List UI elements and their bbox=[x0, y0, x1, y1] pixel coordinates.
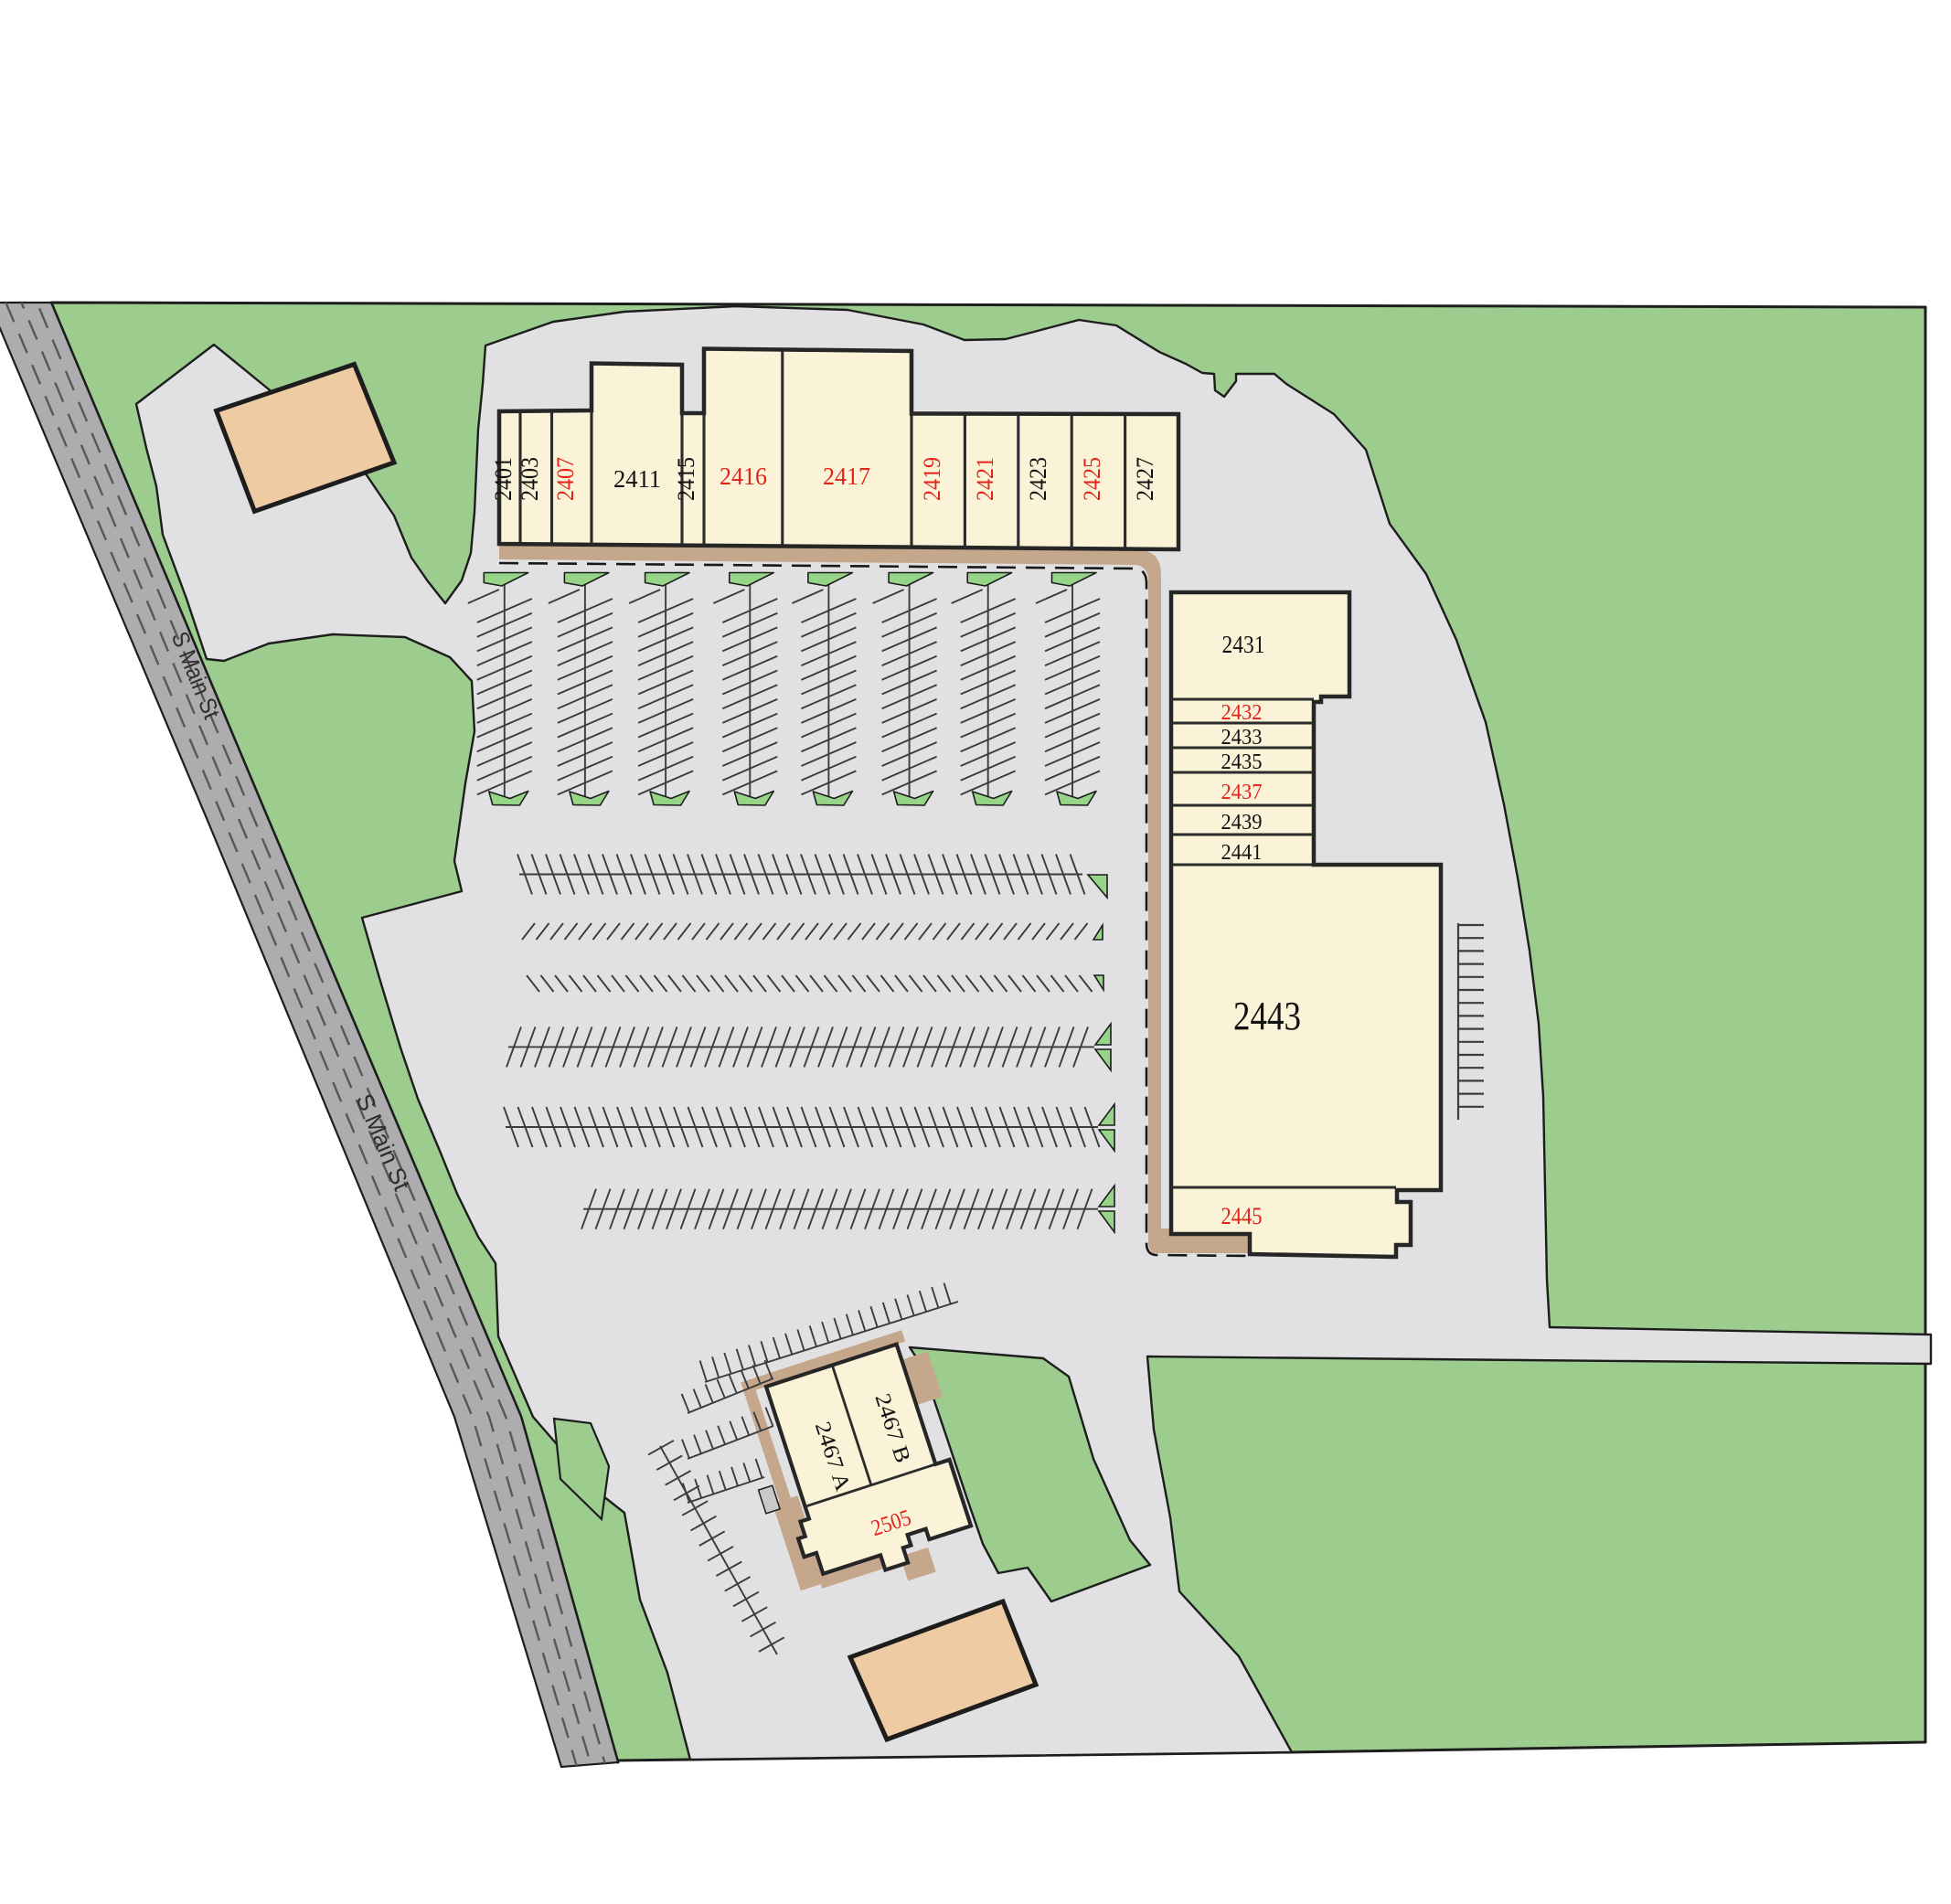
svg-text:2421: 2421 bbox=[972, 457, 998, 501]
svg-text:2439: 2439 bbox=[1221, 811, 1263, 835]
svg-text:2433: 2433 bbox=[1221, 726, 1263, 750]
svg-text:2437: 2437 bbox=[1221, 781, 1263, 804]
svg-text:2425: 2425 bbox=[1079, 457, 1105, 501]
svg-text:2431: 2431 bbox=[1222, 631, 1265, 658]
svg-text:2445: 2445 bbox=[1221, 1203, 1263, 1229]
svg-text:2407: 2407 bbox=[552, 457, 579, 501]
svg-text:2411: 2411 bbox=[613, 465, 661, 493]
svg-text:2435: 2435 bbox=[1221, 750, 1263, 774]
svg-text:2416: 2416 bbox=[720, 463, 767, 490]
svg-text:2403: 2403 bbox=[517, 457, 543, 501]
svg-text:2419: 2419 bbox=[919, 457, 945, 501]
svg-text:2423: 2423 bbox=[1025, 457, 1051, 501]
svg-text:2415: 2415 bbox=[673, 457, 699, 501]
svg-text:2443: 2443 bbox=[1233, 994, 1301, 1038]
svg-text:2417: 2417 bbox=[823, 463, 870, 490]
svg-text:2441: 2441 bbox=[1221, 841, 1263, 865]
svg-text:2432: 2432 bbox=[1221, 701, 1263, 725]
svg-text:2427: 2427 bbox=[1132, 457, 1158, 501]
svg-text:2401: 2401 bbox=[490, 457, 517, 501]
